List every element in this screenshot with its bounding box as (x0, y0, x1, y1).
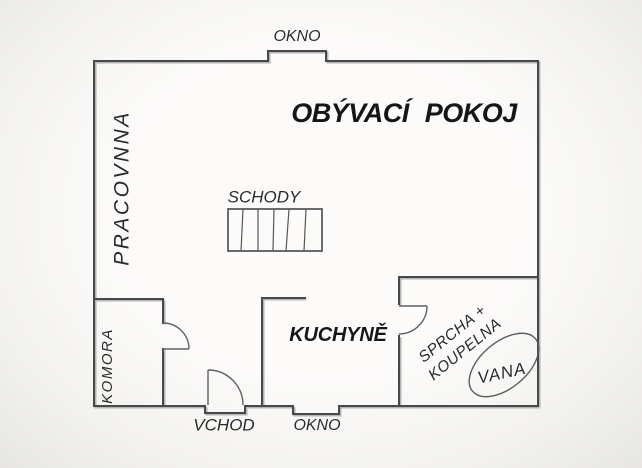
window-bottom-recess (293, 406, 339, 414)
stairs-label: SCHODY (228, 189, 301, 208)
study-label: PRACOVNNA (110, 110, 133, 266)
kitchen-label: KUCHYNĚ (289, 324, 387, 346)
pantry-label: KOMORA (100, 328, 117, 404)
floor-plan-drawing (0, 0, 642, 468)
stairs-symbol (228, 209, 322, 251)
window-top-label: OKNO (273, 28, 320, 46)
pantry-door (163, 323, 189, 349)
window-bottom-label: OKNO (293, 417, 340, 435)
entrance-threshold (205, 406, 245, 413)
entrance-label: VCHOD (193, 417, 254, 436)
bathroom-door (399, 306, 427, 334)
doors-layer (163, 306, 427, 405)
floor-plan: OKNO OBÝVACÍ POKOJ PRACOVNNA SCHODY KUCH… (0, 0, 642, 468)
entrance-door (208, 370, 243, 405)
stairs-treads (241, 209, 306, 251)
wall-kitchen-hall (262, 298, 305, 406)
living-room-label: OBÝVACÍ POKOJ (291, 99, 517, 129)
